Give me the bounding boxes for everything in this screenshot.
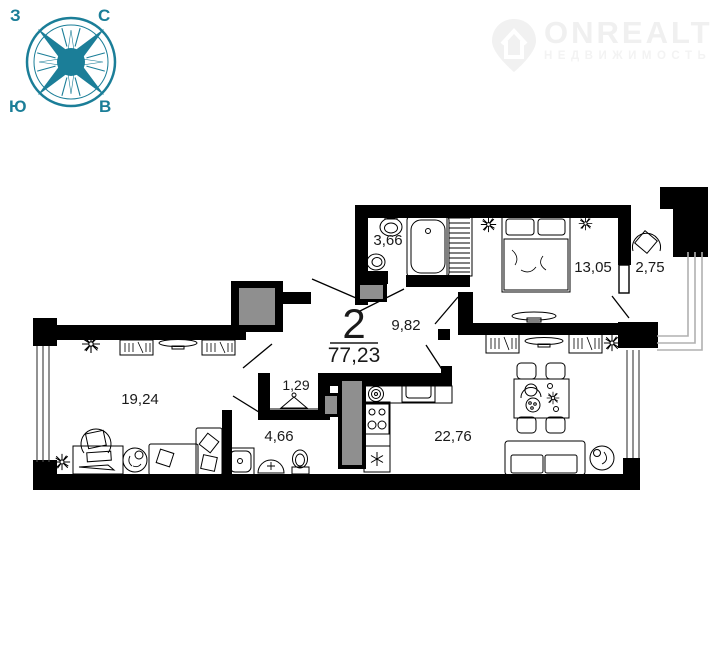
closet-area-label: 1,29 [282,377,309,393]
living-wardrobe-1-icon [120,340,153,355]
bathroom-area-label: 3,66 [373,232,402,249]
walls [33,187,708,490]
balcony-armchair-icon [633,231,661,254]
duct-tall [342,381,362,465]
kitchen-area-label: 22,76 [434,428,472,445]
desk-chair-icon [81,429,111,453]
bedroom-balcony-window [619,265,629,293]
total-area-label: 77,23 [328,344,381,367]
bedroom-plant-icon [579,217,593,231]
kitchen-window [627,350,639,458]
bed-icon [502,215,570,292]
living-wall-plant-icon [82,335,100,353]
desk-icon [73,446,123,474]
living-room-window [37,346,49,462]
living-sofa-icon [149,428,222,475]
dining-flower-icon [547,392,560,405]
entrance-door-leaf [360,285,383,299]
balcony-door-swing [612,296,629,318]
bedroom-wardrobe-icon [447,213,472,276]
living-floor-plant-icon [54,454,70,470]
washing-machine-icon [369,387,384,402]
kitchen-sofa-icon [505,441,585,475]
living-room-area-label: 19,24 [121,391,159,408]
rooms-count-label: 2 [342,300,365,347]
duct-small [325,396,337,414]
bedroom-door-swing [435,297,458,324]
kitchen-wardrobe-1-icon [486,334,519,353]
living-room-door-swing [243,344,272,368]
side-table-icon [590,446,614,470]
shower-room-door-swing [233,396,262,414]
coffee-table-icon [123,448,147,472]
kitchen-wardrobe-2-icon [569,334,602,353]
floor-plan: 3,66 13,05 2,75 9,82 19,24 1,29 4,66 22,… [0,0,720,670]
screenshot-root: З С Ю В ONREALT НЕДВИЖИМОСТЬ [0,0,720,670]
apartment-summary: 2 77,23 [328,300,381,367]
entrance-door-swing [312,279,356,298]
bedroom-area-label: 13,05 [574,259,612,276]
elevator-shaft [239,288,275,325]
fridge-icon [364,446,390,472]
dining-table-icon [514,363,569,433]
bedroom-rug-icon [481,217,496,232]
bedroom-tv-icon [512,312,556,322]
living-tv-icon [159,340,197,350]
shower-toilet-icon [292,450,309,474]
kitchen-door-swing [426,345,443,371]
living-wardrobe-2-icon [202,340,235,355]
balcony-area-label: 2,75 [635,259,664,276]
stove-icon [365,404,389,434]
shower-sink-icon [258,460,284,473]
closet-hanger-icon [268,393,320,409]
kitchen-plant-icon [604,335,620,351]
bathtub-icon [407,216,449,277]
hallway-area-label: 9,82 [391,317,420,334]
shower-room-area-label: 4,66 [264,428,293,445]
kitchen-tv-icon [525,338,563,348]
